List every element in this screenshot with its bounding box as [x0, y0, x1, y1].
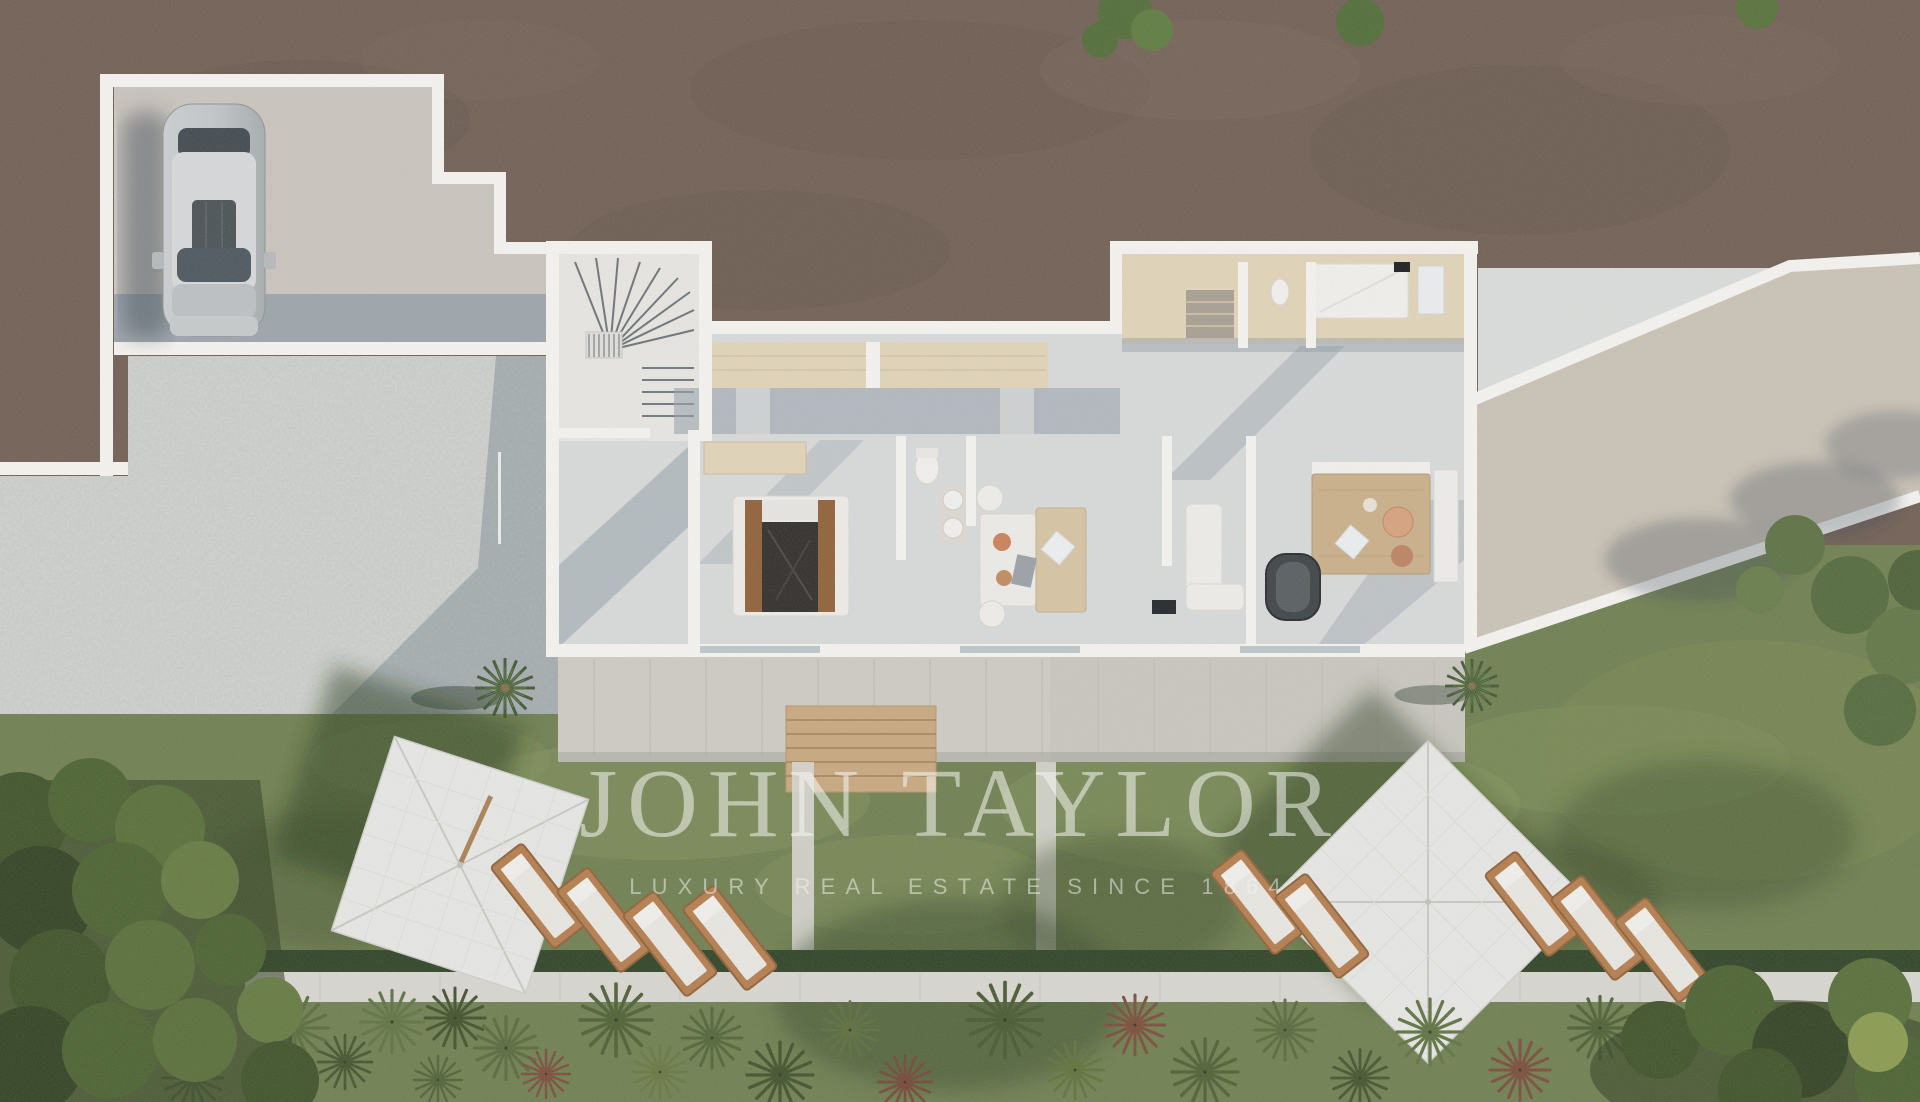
render-canvas: [0, 0, 1920, 1102]
property-aerial-render: JOHN TAYLOR LUXURY REAL ESTATE SINCE 186…: [0, 0, 1920, 1102]
watermark-tagline: LUXURY REAL ESTATE SINCE 1864: [629, 874, 1291, 900]
watermark-brand: JOHN TAYLOR: [579, 748, 1341, 860]
photo-grain-overlay: [0, 0, 1920, 1102]
